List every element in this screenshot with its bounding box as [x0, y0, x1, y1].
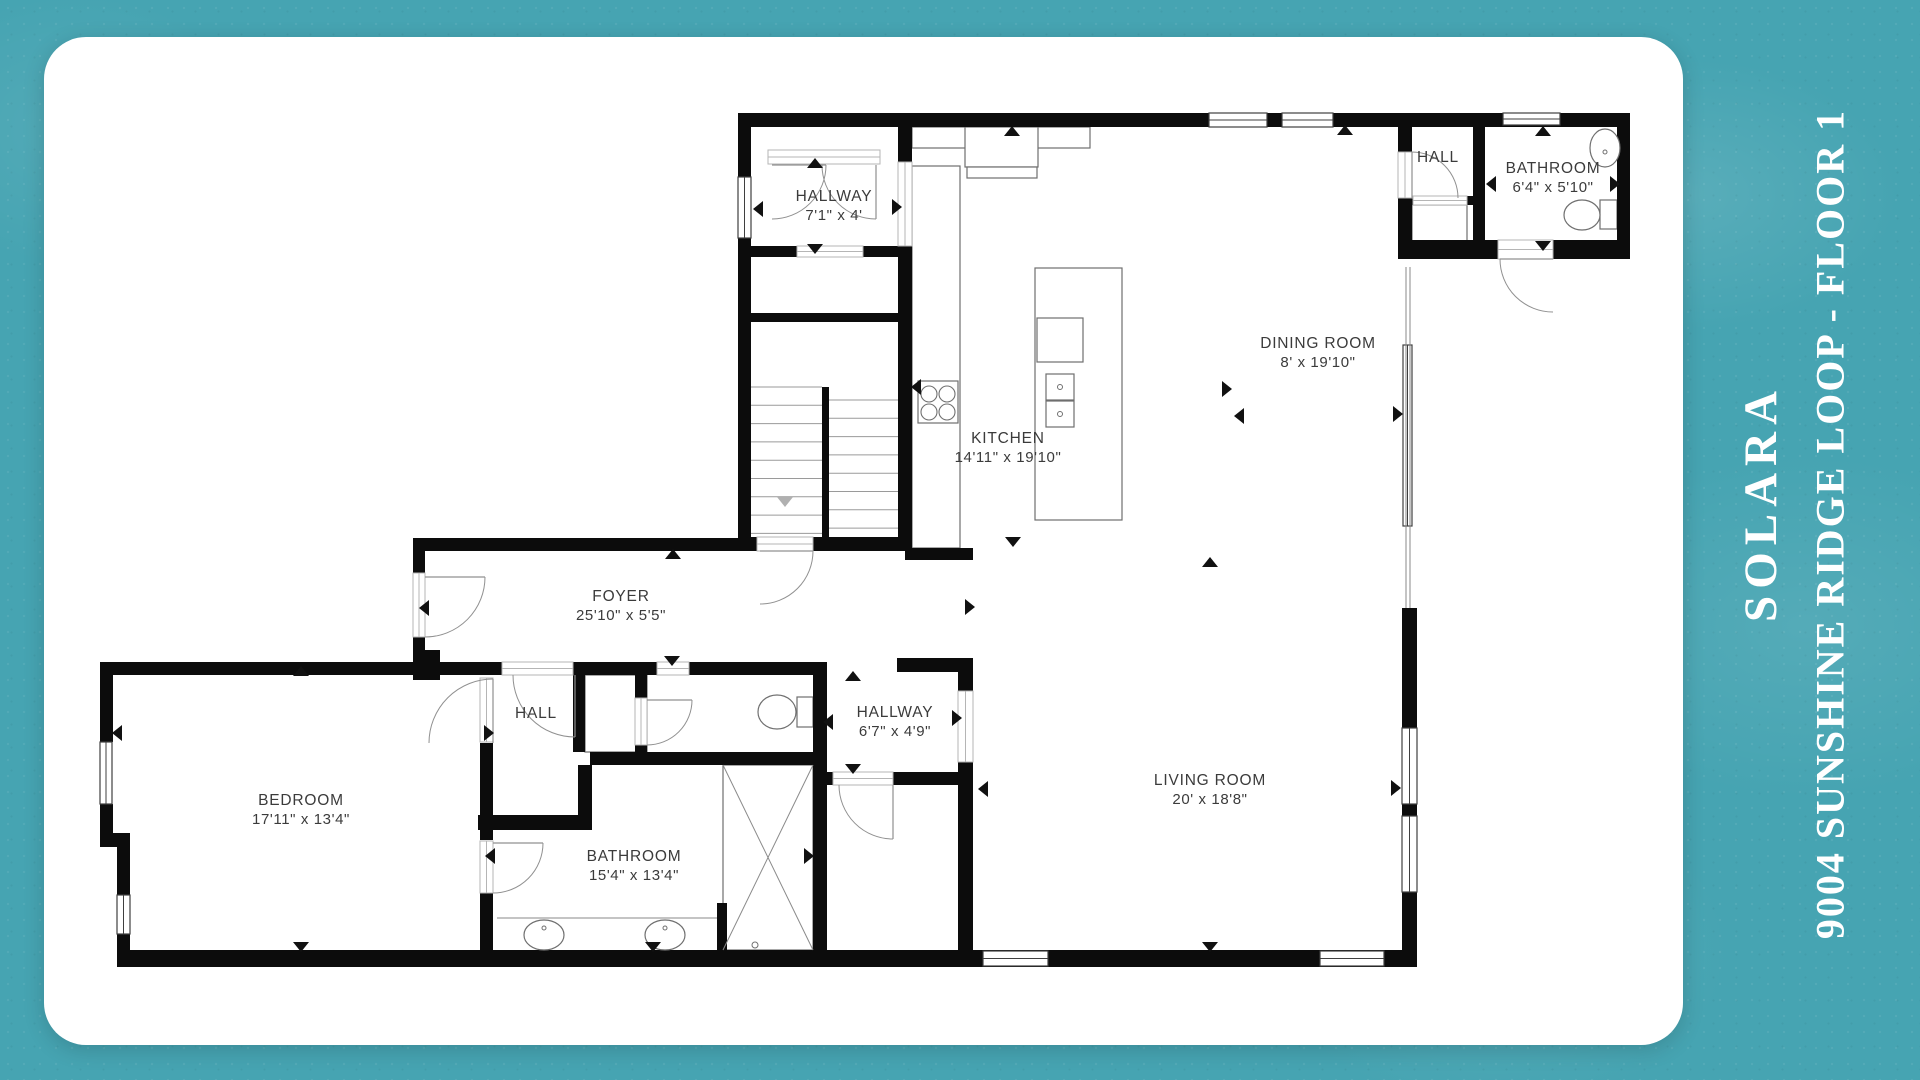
fixture-outline [912, 166, 960, 548]
door-arc [425, 577, 485, 637]
direction-arrow [1393, 406, 1403, 422]
wall [898, 246, 912, 548]
room-label-bedroom: BEDROOM [258, 792, 344, 809]
fixture-outline [967, 167, 1037, 178]
cooktop-burner [921, 404, 937, 420]
door-arc [647, 700, 692, 745]
door-arc [493, 843, 543, 893]
wall [117, 847, 130, 895]
door-arc [760, 551, 813, 604]
fixture-outline [1046, 374, 1074, 400]
wall [117, 934, 130, 963]
direction-arrow [1535, 126, 1551, 136]
room-dims-living-room: 20' x 18'8" [1172, 791, 1247, 808]
room-dims-bedroom: 17'11" x 13'4" [252, 811, 350, 828]
door-arc [839, 785, 893, 839]
wall [573, 662, 657, 675]
sink-or-toilet [524, 920, 564, 950]
wall [100, 675, 113, 742]
direction-arrow [1486, 176, 1496, 192]
direction-arrow [1391, 780, 1401, 796]
room-dims-foyer: 25'10" x 5'5" [576, 607, 666, 624]
room-dims-hallway-lower: 6'7" x 4'9" [859, 723, 931, 740]
fixture-outline [797, 697, 813, 727]
floor-plan: HALLWAY7'1" x 4'KITCHEN14'11" x 19'10"DI… [0, 0, 1920, 1080]
wall [1473, 127, 1485, 243]
property-name: SOLARA [1734, 384, 1788, 622]
cooktop-burner [921, 386, 937, 402]
wall [905, 548, 973, 560]
room-label-hall-lower: HALL [515, 705, 557, 722]
fixture-outline [1600, 200, 1617, 229]
stair-rail [822, 387, 829, 537]
room-label-foyer: FOYER [592, 588, 649, 605]
sink-or-toilet [758, 695, 796, 729]
room-label-hallway-lower: HALLWAY [857, 704, 934, 721]
wall [478, 815, 592, 830]
room-dims-bathroom-lower: 15'4" x 13'4" [589, 867, 679, 884]
fixture-outline [965, 127, 1038, 167]
room-label-hall-top-right: HALL [1417, 149, 1459, 166]
wall [689, 662, 827, 675]
fixture-outline [1037, 318, 1083, 362]
wall [898, 127, 912, 162]
room-dims-dining-room: 8' x 19'10" [1280, 354, 1355, 371]
room-dims-hallway-upper: 7'1" x 4' [805, 207, 862, 224]
sink-or-toilet [1564, 200, 1600, 230]
wall [413, 538, 753, 551]
room-label-kitchen: KITCHEN [971, 430, 1045, 447]
wall [480, 893, 493, 950]
room-dims-bathroom-top-right: 6'4" x 5'10" [1512, 179, 1593, 196]
door-arc [1500, 259, 1553, 312]
room-label-bathroom-lower: BATHROOM [587, 848, 682, 865]
direction-arrow [777, 497, 793, 507]
wall [117, 950, 1417, 967]
wall [100, 662, 417, 675]
direction-arrow [112, 725, 122, 741]
cooktop-burner [939, 386, 955, 402]
direction-arrow [978, 781, 988, 797]
wall [590, 752, 827, 765]
wall [100, 833, 130, 847]
room-label-hallway-upper: HALLWAY [796, 188, 873, 205]
room-label-bathroom-top-right: BATHROOM [1506, 160, 1601, 177]
direction-arrow [1222, 381, 1232, 397]
wall [813, 663, 827, 950]
direction-arrow [1234, 408, 1244, 424]
direction-arrow [965, 599, 975, 615]
direction-arrow [1202, 557, 1218, 567]
wall [1402, 608, 1417, 728]
wall [425, 662, 502, 675]
cooktop-burner [939, 404, 955, 420]
direction-arrow [845, 671, 861, 681]
direction-arrow [753, 201, 763, 217]
room-dims-kitchen: 14'11" x 19'10" [955, 449, 1062, 466]
room-label-dining-room: DINING ROOM [1260, 335, 1376, 352]
direction-arrow [1005, 537, 1021, 547]
room-label-living-room: LIVING ROOM [1154, 772, 1266, 789]
wall [717, 903, 727, 950]
wall [738, 113, 1630, 127]
fixture-outline [1046, 401, 1074, 427]
wall [750, 313, 903, 322]
wall [1402, 804, 1417, 816]
property-address-floor: 9004 SUNSHINE RIDGE LOOP - FLOOR 1 [1807, 109, 1854, 939]
